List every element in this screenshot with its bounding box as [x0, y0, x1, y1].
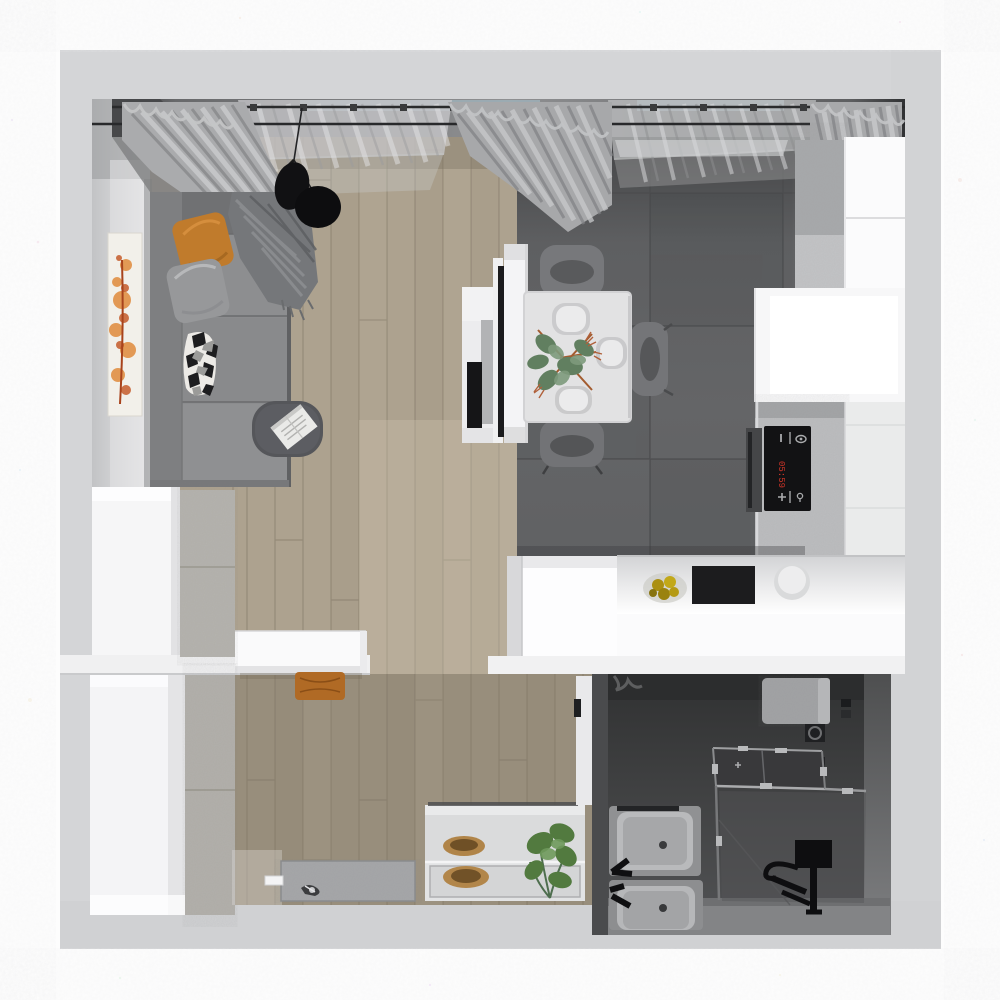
svg-text:05:59: 05:59	[776, 461, 786, 488]
